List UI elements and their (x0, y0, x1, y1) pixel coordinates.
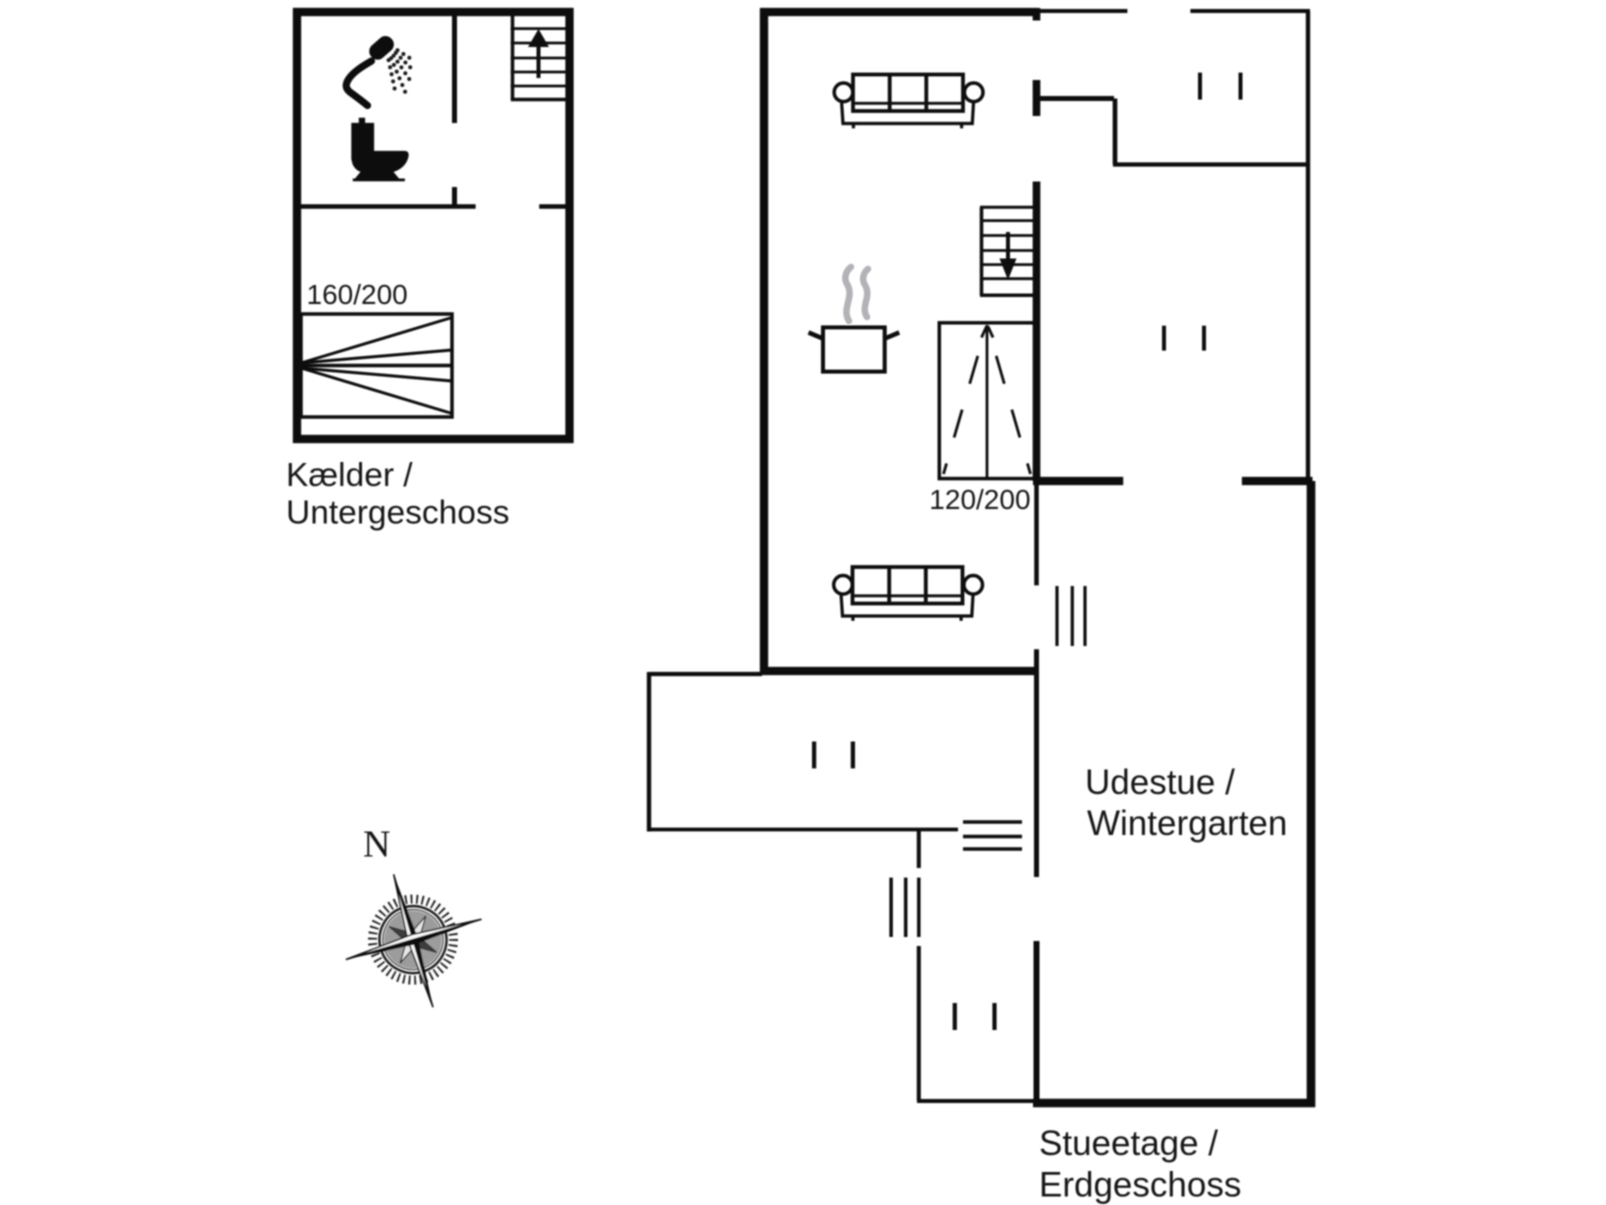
svg-text:Stueetage /: Stueetage / (1039, 1124, 1218, 1163)
svg-text:Untergeschoss: Untergeschoss (286, 495, 509, 532)
svg-text:Kælder /: Kælder / (286, 457, 413, 494)
svg-text:Erdgeschoss: Erdgeschoss (1039, 1166, 1241, 1205)
svg-text:Udestue /: Udestue / (1085, 763, 1235, 802)
svg-text:160/200: 160/200 (307, 279, 408, 310)
svg-text:N: N (363, 824, 390, 866)
svg-text:120/200: 120/200 (929, 484, 1030, 515)
svg-text:Wintergarten: Wintergarten (1087, 804, 1287, 843)
